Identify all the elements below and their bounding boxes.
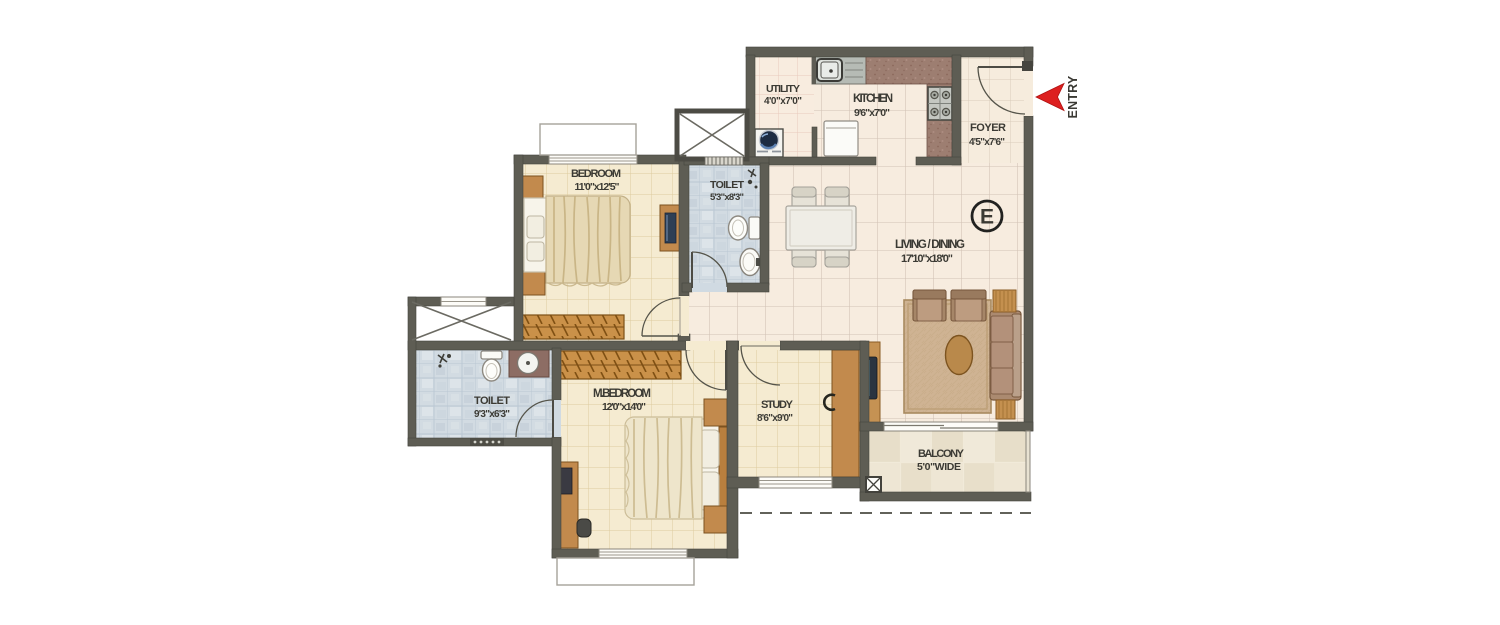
svg-text:ENTRY: ENTRY: [1066, 75, 1080, 118]
svg-text:TOILET: TOILET: [474, 395, 510, 407]
svg-text:5'3"x8'3": 5'3"x8'3": [710, 192, 744, 203]
svg-text:UTILITY: UTILITY: [766, 83, 800, 95]
svg-text:11'0"x12'5": 11'0"x12'5": [575, 181, 620, 193]
svg-text:BEDROOM: BEDROOM: [571, 168, 621, 180]
svg-text:STUDY: STUDY: [761, 399, 794, 411]
svg-text:8'6"x9'0": 8'6"x9'0": [757, 413, 793, 424]
svg-text:4'5"x7'6": 4'5"x7'6": [969, 137, 1005, 148]
svg-text:17'10"x18'0": 17'10"x18'0": [901, 253, 953, 265]
svg-text:12'0"x14'0": 12'0"x14'0": [602, 401, 646, 413]
svg-text:9'6"x7'0": 9'6"x7'0": [854, 107, 890, 119]
svg-text:LIVING / DINING: LIVING / DINING: [895, 239, 965, 251]
svg-text:M.BEDROOM: M.BEDROOM: [593, 388, 651, 400]
svg-text:TOILET: TOILET: [710, 179, 745, 191]
svg-text:E: E: [980, 206, 994, 229]
svg-text:FOYER: FOYER: [970, 122, 1006, 134]
svg-text:5'0"WIDE: 5'0"WIDE: [917, 461, 961, 473]
svg-text:KITCHEN: KITCHEN: [853, 93, 893, 105]
svg-text:BALCONY: BALCONY: [918, 448, 965, 460]
svg-text:9'3"x6'3": 9'3"x6'3": [474, 409, 510, 420]
svg-text:4'0"x7'0": 4'0"x7'0": [764, 96, 802, 107]
